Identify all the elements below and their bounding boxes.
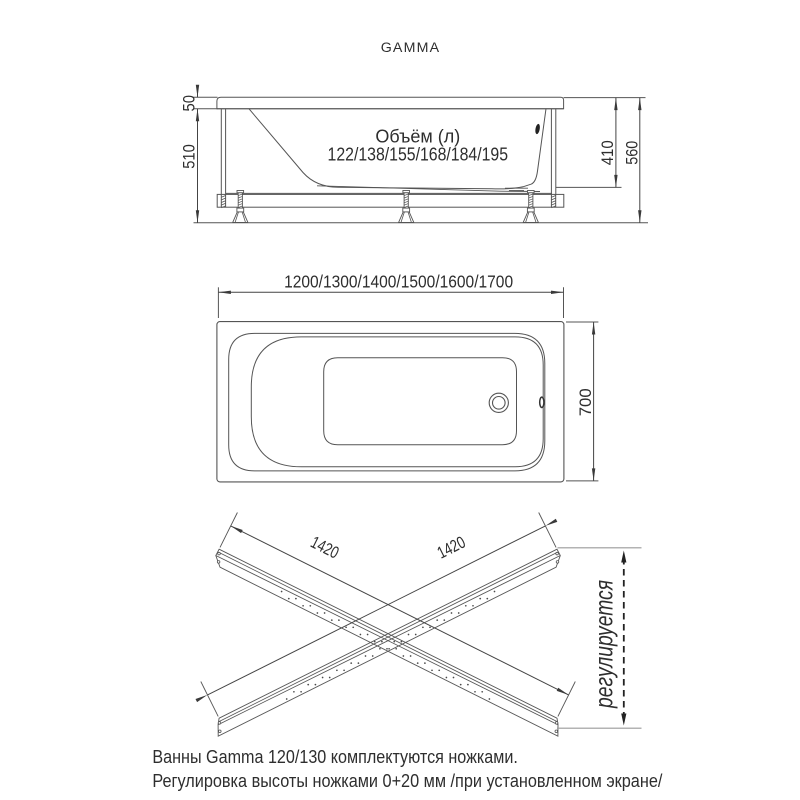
svg-text:50: 50 [179, 95, 198, 112]
svg-text:1200/1300/1400/1500/1600/1700: 1200/1300/1400/1500/1600/1700 [284, 272, 513, 292]
svg-text:регулируется: регулируется [591, 580, 619, 709]
svg-text:560: 560 [622, 141, 641, 165]
svg-text:Ванны Gamma 120/130 комплектую: Ванны Gamma 120/130 комплектуются ножкам… [152, 746, 518, 767]
svg-text:122/138/155/168/184/195: 122/138/155/168/184/195 [328, 145, 509, 165]
svg-text:Регулировка высоты ножками 0+2: Регулировка высоты ножками 0+20 мм /при … [152, 770, 663, 791]
svg-text:GAMMA: GAMMA [381, 40, 441, 56]
svg-text:700: 700 [576, 388, 595, 416]
svg-text:Объём (л): Объём (л) [375, 127, 460, 147]
svg-text:510: 510 [179, 144, 198, 169]
svg-text:410: 410 [598, 140, 617, 165]
